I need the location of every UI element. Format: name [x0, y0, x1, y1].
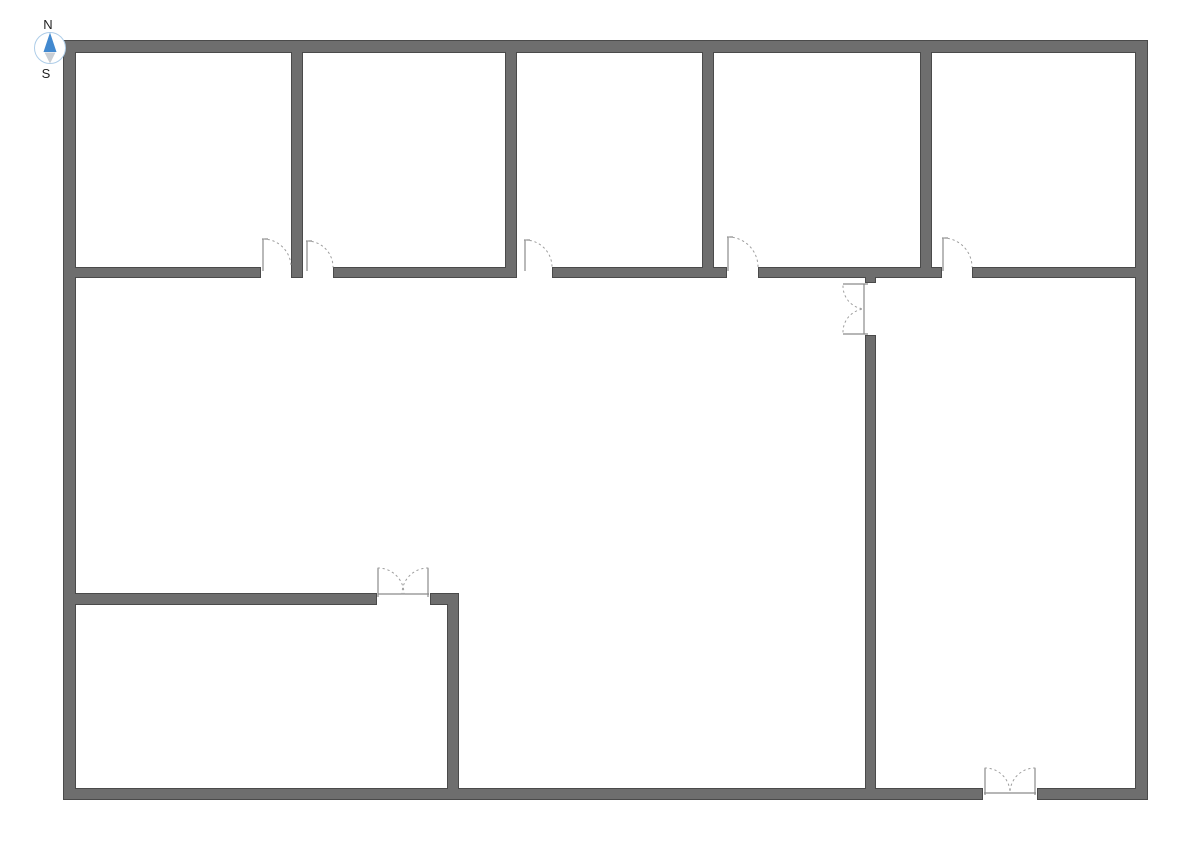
center-wall-double-door-swing-arc-2 — [843, 309, 864, 332]
room-1-door[interactable] — [262, 239, 291, 271]
corridor-wall-segment-2[interactable] — [334, 268, 516, 277]
corridor-wall-segment-3[interactable] — [553, 268, 726, 277]
top-rooms-divider-2[interactable] — [506, 41, 516, 277]
corridor-wall-segment-5[interactable] — [973, 268, 1147, 277]
room-5-door-swing-arc — [943, 238, 972, 267]
exterior-wall-right[interactable] — [1136, 41, 1147, 799]
bottom-left-room-right-wall[interactable] — [448, 594, 458, 799]
exterior-wall-left[interactable] — [64, 41, 75, 799]
room-3-door-swing-arc — [525, 240, 552, 267]
floor-plan: N S — [0, 0, 1191, 841]
bottom-left-room-double-door-swing-arc-2 — [402, 568, 428, 594]
compass-south-label: S — [42, 66, 51, 81]
floor-plan-svg: N S — [0, 0, 1191, 841]
exterior-wall-bottom-right[interactable] — [1038, 789, 1147, 799]
room-2-door[interactable] — [306, 241, 333, 271]
wall-outline-layer — [63, 40, 1148, 800]
top-rooms-divider-1[interactable] — [292, 41, 302, 277]
exterior-wall-bottom-left[interactable] — [64, 789, 982, 799]
bottom-left-room-double-door-threshold — [377, 593, 430, 605]
top-rooms-divider-4[interactable] — [921, 41, 931, 277]
room-3-door[interactable] — [524, 240, 552, 271]
room-4-door[interactable] — [727, 237, 758, 271]
exterior-wall-top[interactable] — [64, 41, 1147, 52]
center-wall-double-door[interactable] — [843, 284, 877, 334]
bottom-left-room-double-door[interactable] — [377, 568, 430, 605]
center-wall-double-door-threshold — [864, 284, 877, 334]
room-5-door[interactable] — [942, 238, 972, 271]
compass[interactable]: N S — [35, 17, 66, 81]
top-rooms-divider-3[interactable] — [703, 41, 713, 277]
room-2-door-swing-arc — [307, 241, 333, 267]
door-layer — [262, 237, 1037, 800]
corridor-wall-segment-4[interactable] — [759, 268, 941, 277]
center-vertical-wall[interactable] — [866, 336, 875, 799]
compass-north-label: N — [43, 17, 52, 32]
room-4-door-swing-arc — [728, 237, 758, 267]
center-wall-double-door-swing-arc-1 — [843, 286, 864, 309]
bottom-exterior-double-door[interactable] — [983, 768, 1037, 800]
bottom-left-room-top-wall[interactable] — [64, 594, 376, 604]
corridor-wall-segment-1[interactable] — [64, 268, 260, 277]
bottom-left-room-double-door-swing-arc-1 — [378, 568, 404, 594]
room-1-door-swing-arc — [263, 239, 291, 267]
wall-fill-layer — [64, 41, 1147, 799]
center-vertical-wall-stub[interactable] — [866, 268, 875, 282]
